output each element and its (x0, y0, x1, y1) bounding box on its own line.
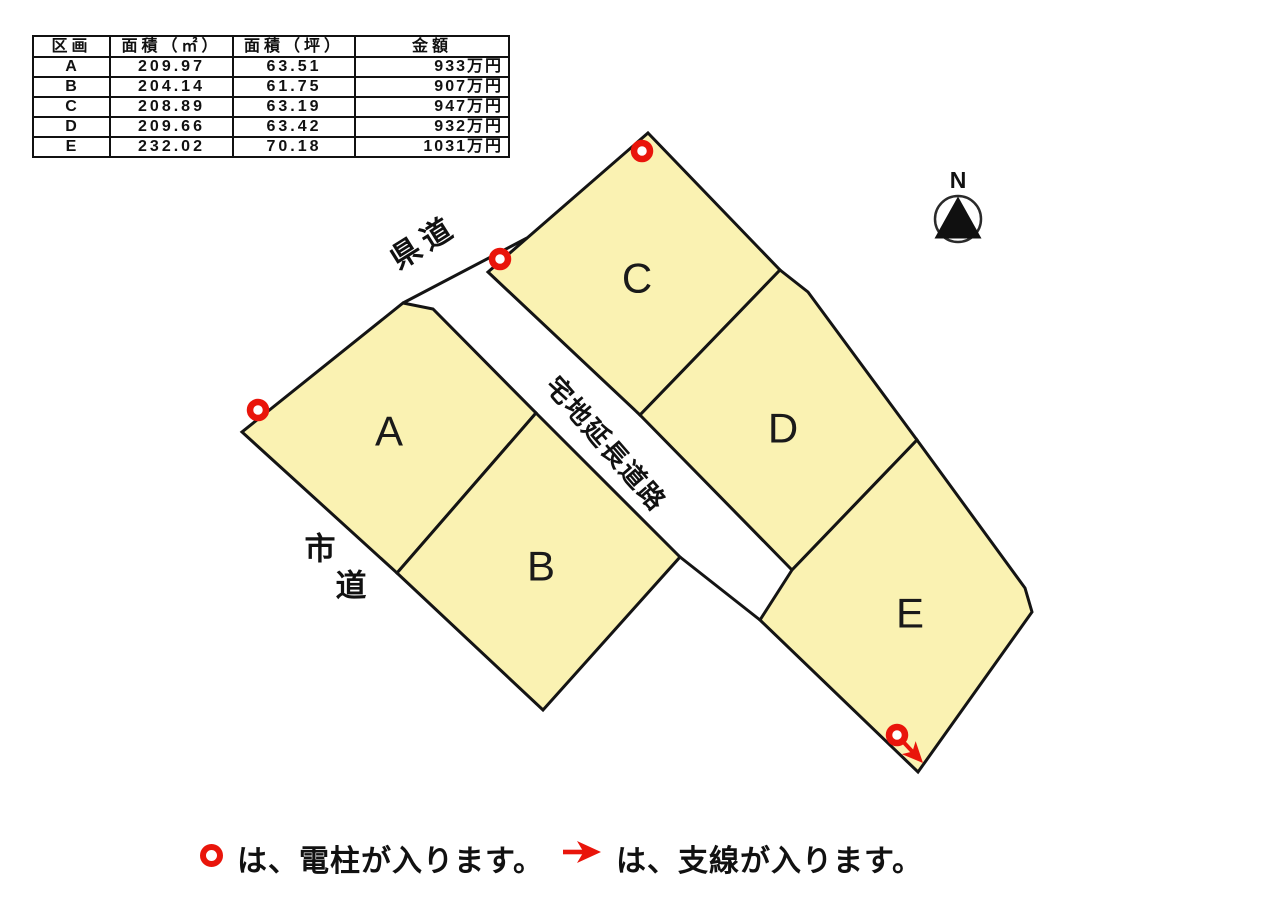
parcel-d-label: D (768, 405, 798, 452)
legend-pole-icon (200, 844, 223, 867)
prefectural-road-label: 県道 (385, 210, 464, 276)
parcel-e-label: E (896, 590, 924, 637)
plat-map-page: 区画 面積（㎡） 面積（坪） 金額 A 209.97 63.51 933万円 B… (0, 0, 1280, 904)
parcel-b-label: B (527, 543, 555, 590)
legend-wire-arrow-icon (556, 840, 602, 864)
plat-diagram: 県道 宅地延長道路 市 道 A B C D E N (0, 0, 1280, 904)
city-road-label-char1: 市 (305, 532, 336, 567)
legend-wire-text: は、支線が入ります。 (616, 836, 923, 880)
north-arrow-icon: N (935, 167, 982, 242)
north-label: N (950, 167, 967, 193)
parcel-c-label: C (622, 255, 652, 302)
parcel-a-label: A (375, 408, 403, 455)
legend-pole-text: は、電柱が入ります。 (237, 836, 544, 880)
pole-marker-icon (250, 402, 266, 418)
pole-marker-icon (492, 251, 508, 267)
city-road-label-char2: 道 (336, 569, 367, 604)
extension-road-end-edge (680, 557, 760, 620)
pole-marker-icon (634, 143, 650, 159)
